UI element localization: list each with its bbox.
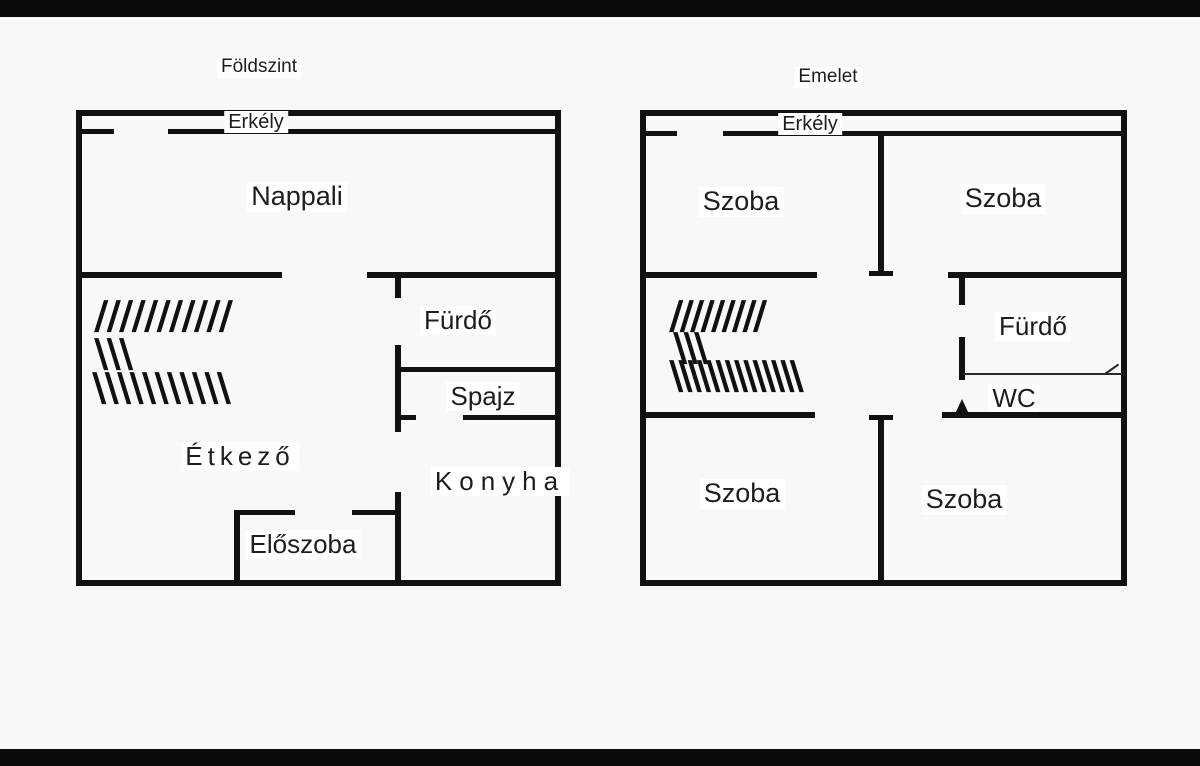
wall-lower-left: [640, 412, 815, 418]
wall-outer-right: [1121, 110, 1127, 586]
room-label-szoba-top-right: Szoba: [961, 184, 1046, 214]
wall-furdo-left-upper: [959, 272, 965, 305]
wall-top-divider-cap: [869, 271, 893, 276]
upper-floor-plan: Emelet Erkély Szoba Szoba Fürdő WC Szob: [0, 0, 1200, 766]
floorplan-image: Földszint Erkély Nappali Fürdő Spajz Kon…: [0, 0, 1200, 766]
room-label-wc: WC: [988, 384, 1039, 413]
wall-outer-top: [640, 110, 1127, 116]
wall-lower-right: [942, 412, 1127, 418]
room-label-szoba-bottom-left: Szoba: [700, 479, 785, 509]
room-label-erkely: Erkély: [778, 113, 842, 135]
room-label-szoba-top-left: Szoba: [699, 187, 784, 217]
room-label-furdo: Fürdő: [995, 312, 1071, 341]
room-label-szoba-bottom-right: Szoba: [922, 485, 1007, 515]
wall-middle-right: [948, 272, 1127, 278]
wall-outer-left: [640, 110, 646, 586]
wall-wc-divider-thin: [963, 373, 1122, 375]
upper-floor-title: Emelet: [794, 67, 861, 88]
wall-bottom-rooms-divider: [878, 418, 884, 586]
wall-middle-left: [640, 272, 817, 278]
door-marker-triangle: [955, 399, 969, 414]
wall-balcony-stub: [640, 131, 677, 136]
wall-top-rooms-divider: [878, 131, 884, 271]
stairs-hatch-row3: \\\\\\\\\\\\\\: [670, 357, 800, 394]
